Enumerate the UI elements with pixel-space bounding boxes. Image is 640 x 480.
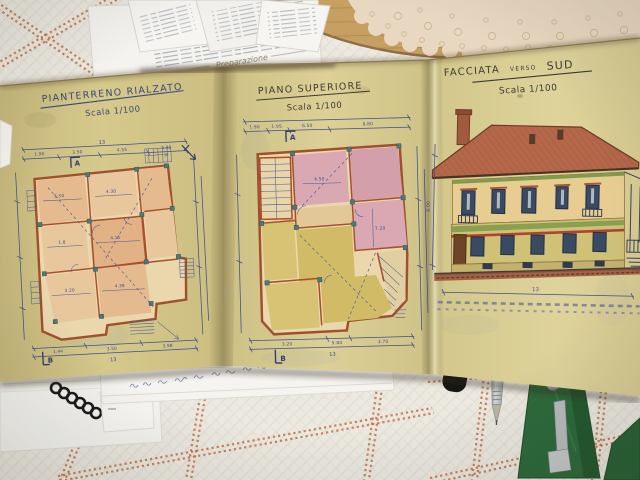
photo-scene: Preparazione xyxy=(0,0,640,480)
vignette xyxy=(0,0,640,480)
photo-canvas: Preparazione xyxy=(0,0,640,480)
